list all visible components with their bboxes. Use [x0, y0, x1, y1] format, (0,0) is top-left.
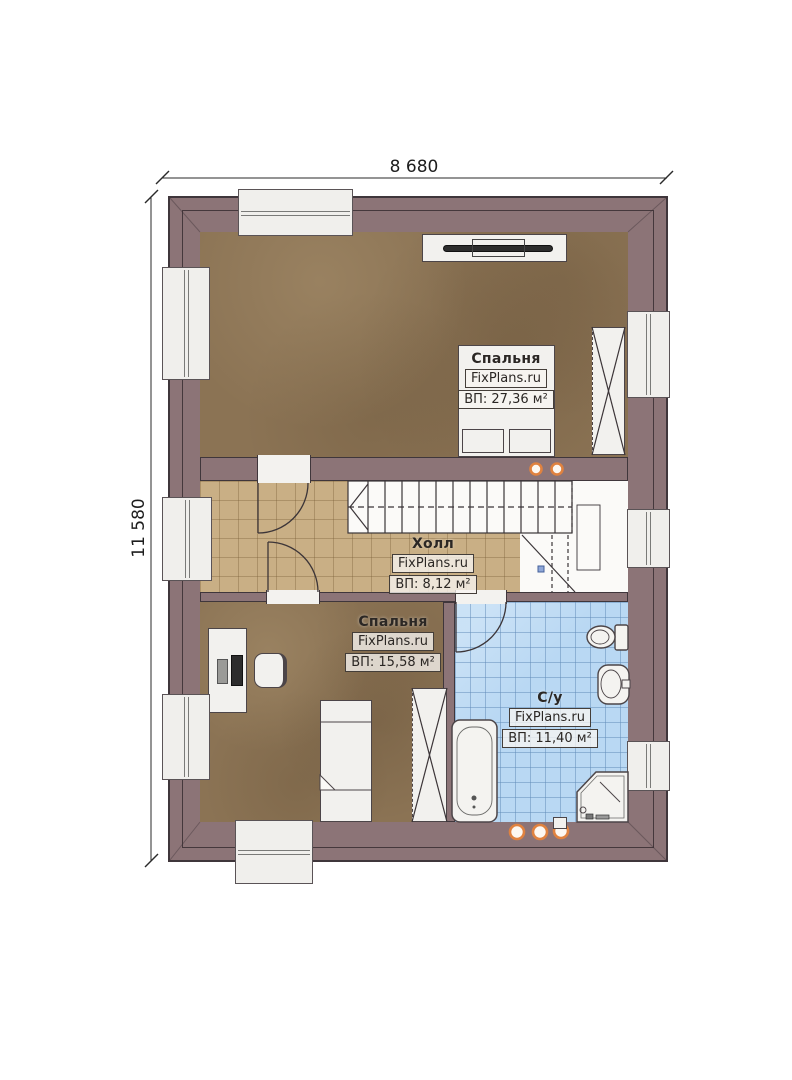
area-box: ВП: 8,12 м² — [389, 575, 476, 594]
window-right-1 — [627, 311, 670, 398]
room-name: Спальня — [471, 351, 540, 367]
watermark-box: FixPlans.ru — [392, 554, 474, 573]
wardrobe-bedroom-2 — [412, 688, 447, 822]
pillow-left — [462, 429, 504, 453]
window-bottom — [235, 820, 313, 884]
tv-outline — [472, 239, 525, 257]
room-name: С/у — [537, 690, 562, 706]
window-right-3 — [627, 741, 670, 791]
watermark-box: FixPlans.ru — [465, 369, 547, 388]
wardrobe-bedroom-1 — [592, 327, 625, 455]
dimension-top-label: 8 680 — [390, 157, 439, 177]
room-name: Спальня — [358, 614, 427, 630]
watermark-box: FixPlans.ru — [509, 708, 591, 727]
window-left-3 — [162, 694, 210, 780]
window-top — [238, 189, 353, 236]
room-label-bathroom: С/у FixPlans.ru ВП: 11,40 м² — [502, 690, 598, 748]
window-right-2 — [627, 509, 670, 568]
computer-monitor — [231, 655, 243, 686]
dimension-left-label: 11 580 — [129, 498, 149, 557]
room-name: Холл — [412, 536, 454, 552]
bedroom-1-floor — [200, 232, 628, 457]
window-left-2 — [162, 497, 212, 581]
office-chair — [254, 653, 287, 688]
pillow-right — [509, 429, 551, 453]
window-left-1 — [162, 267, 210, 380]
floor-plan-canvas: 8 680 11 580 — [0, 0, 792, 1080]
area-box: ВП: 15,58 м² — [345, 653, 441, 672]
door-opening-bedroom-2 — [266, 590, 320, 604]
keyboard — [217, 659, 228, 684]
room-label-bedroom-2: Спальня FixPlans.ru ВП: 15,58 м² — [338, 614, 448, 672]
area-box: ВП: 11,40 м² — [502, 729, 598, 748]
watermark-box: FixPlans.ru — [352, 632, 434, 651]
area-box: ВП: 27,36 м² — [458, 390, 554, 409]
single-bed — [320, 700, 372, 822]
stair-winder-area — [520, 533, 628, 592]
valve-box — [553, 817, 567, 829]
room-label-hall: Холл FixPlans.ru ВП: 8,12 м² — [381, 536, 485, 594]
stair-run-area — [348, 481, 628, 533]
room-label-bedroom-1: Спальня FixPlans.ru ВП: 27,36 м² — [446, 351, 566, 409]
door-opening-bedroom-1 — [257, 455, 311, 483]
